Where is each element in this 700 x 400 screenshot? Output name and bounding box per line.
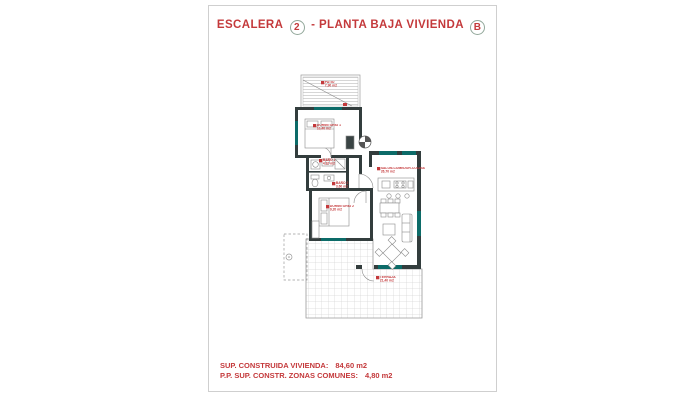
stools-icon [387,194,409,198]
floor-plan: PATIO7,90 m2 DORMITORIO 110,40 m2 BAÑO 1… [276,61,446,341]
surface-summary: SUP. CONSTRUIDA VIVIENDA:84,60 m2 P.P. S… [220,361,392,381]
window-living-top-2 [402,151,416,155]
bathroom2-fixtures [311,175,334,187]
drawing-canvas: ESCALERA 2 - PLANTA BAJA VIVIENDA B [0,0,700,400]
benchmark-icon [359,136,371,148]
kitchen-counter-icon [378,178,414,191]
room-label-patio: PATIO7,90 m2 [321,81,337,88]
room-label-bath1: BAÑO 14,10 m2 [319,159,335,166]
title-middle: - PLANTA BAJA VIVIENDA [311,19,463,31]
dwelling-letter-badge: B [470,20,485,35]
room-label-bedroom2: DORMITORIO 29,20 m2 [326,205,354,212]
patio [301,75,360,108]
common-zones-line: P.P. SUP. CONSTR. ZONAS COMUNES:4,80 m2 [220,371,392,381]
dashed-projection [284,234,307,280]
wardrobe2-icon [312,221,319,238]
built-area-value: 84,60 m2 [328,361,367,370]
label-square-icon [326,205,329,208]
window-bedroom1-left [295,121,298,145]
built-area-label: SUP. CONSTRUIDA VIVIENDA: [220,361,328,370]
title-prefix: ESCALERA [217,19,283,31]
label-square-icon [321,81,324,84]
window-bedroom1-top [314,107,342,110]
label-square-icon [313,124,316,127]
page-title: ESCALERA 2 - PLANTA BAJA VIVIENDA B [209,19,496,35]
bedroom1-door-arc [321,147,331,157]
room-label-living: SALON-COMEDOR-COCINA26,70 m2 [377,167,425,174]
room-label-bath2: BAÑO 23,60 m2 [332,182,348,189]
room-label-terrace: TERRAZA21,40 m2 [376,276,396,283]
window-living-top-1 [379,151,397,155]
sofa-icon [402,214,412,242]
label-square-icon [377,167,380,170]
label-square-icon [376,276,379,279]
dining-table-icon [380,199,400,217]
plan-sheet: ESCALERA 2 - PLANTA BAJA VIVIENDA B [208,5,497,392]
patio-red-mark [343,103,347,106]
stair-number-badge: 2 [290,20,305,35]
built-area-line: SUP. CONSTRUIDA VIVIENDA:84,60 m2 [220,361,392,371]
bed2-icon [319,198,349,226]
room-label-bedroom1: DORMITORIO 110,40 m2 [313,124,341,131]
bedroom2-door-arc [354,191,366,203]
label-square-icon [319,159,322,162]
window-bedroom2-bottom [321,238,346,241]
common-zones-value: 4,80 m2 [358,371,393,380]
window-living-right [417,211,421,236]
entry-door-arc [359,174,373,188]
common-zones-label: P.P. SUP. CONSTR. ZONAS COMUNES: [220,371,358,380]
coffee-table-icon [383,224,395,235]
wardrobe1-icon [346,136,354,149]
label-square-icon [332,182,335,185]
floor-plan-svg [276,61,446,341]
